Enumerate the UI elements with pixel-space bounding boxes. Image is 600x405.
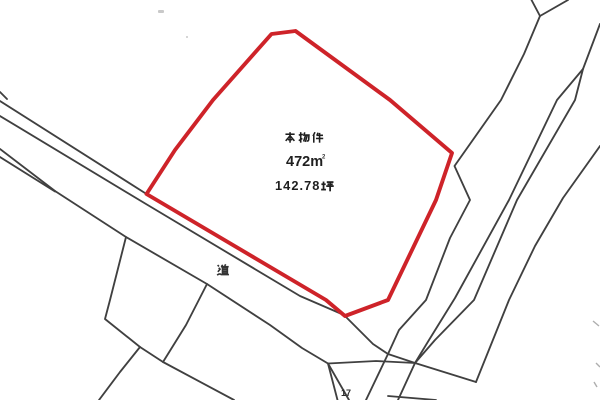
- svg-text:472m: 472m: [286, 154, 323, 170]
- svg-text:142.78: 142.78: [275, 178, 320, 193]
- svg-text:17: 17: [341, 388, 351, 398]
